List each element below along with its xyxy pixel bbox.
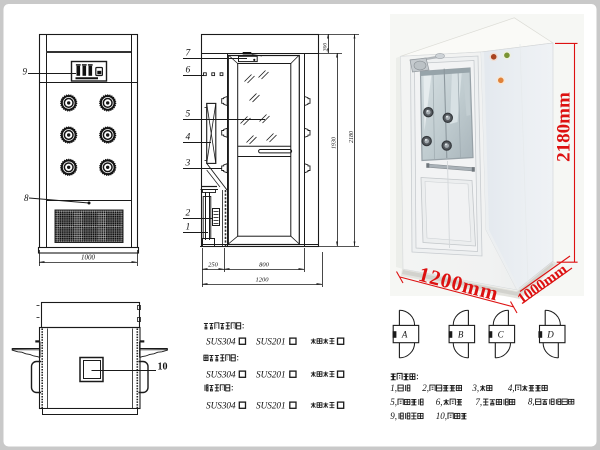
svg-text:1930: 1930 — [332, 137, 338, 149]
svg-text:7,: 7, — [475, 397, 482, 407]
svg-text:1000: 1000 — [81, 254, 96, 262]
svg-text:4,: 4, — [508, 383, 515, 393]
svg-text:2: 2 — [186, 209, 191, 219]
svg-text:SUS201: SUS201 — [256, 337, 286, 347]
svg-text:2180mm: 2180mm — [554, 92, 575, 162]
svg-text:250: 250 — [208, 262, 219, 269]
svg-text:1200: 1200 — [256, 277, 270, 284]
svg-text:SUS201: SUS201 — [256, 401, 286, 411]
svg-text:8: 8 — [24, 193, 29, 203]
svg-text:B: B — [458, 330, 464, 340]
svg-text:SUS304: SUS304 — [206, 401, 236, 411]
svg-text:SUS304: SUS304 — [206, 337, 236, 347]
svg-text:10,: 10, — [436, 411, 447, 421]
svg-text:3: 3 — [185, 159, 191, 169]
svg-text:6,: 6, — [436, 397, 443, 407]
svg-text:SUS201: SUS201 — [256, 370, 286, 380]
svg-text:2,: 2, — [422, 383, 429, 393]
svg-text:9,: 9, — [390, 411, 397, 421]
svg-text:D: D — [546, 330, 554, 340]
svg-text:9: 9 — [23, 67, 28, 77]
svg-text:3,: 3, — [471, 383, 479, 393]
svg-text:6: 6 — [186, 66, 191, 76]
svg-text:1,: 1, — [390, 383, 397, 393]
svg-text:SUS304: SUS304 — [206, 370, 236, 380]
svg-text:C: C — [498, 330, 505, 340]
svg-text:8,: 8, — [528, 397, 535, 407]
svg-text:A: A — [401, 330, 408, 340]
svg-text:5: 5 — [186, 110, 191, 120]
svg-text:2180: 2180 — [349, 131, 355, 143]
svg-text:10: 10 — [158, 362, 168, 373]
svg-text:1: 1 — [186, 223, 191, 233]
svg-text:800: 800 — [259, 262, 270, 269]
svg-text:4: 4 — [186, 133, 191, 143]
svg-text:300: 300 — [323, 43, 329, 53]
svg-text:5,: 5, — [390, 397, 397, 407]
